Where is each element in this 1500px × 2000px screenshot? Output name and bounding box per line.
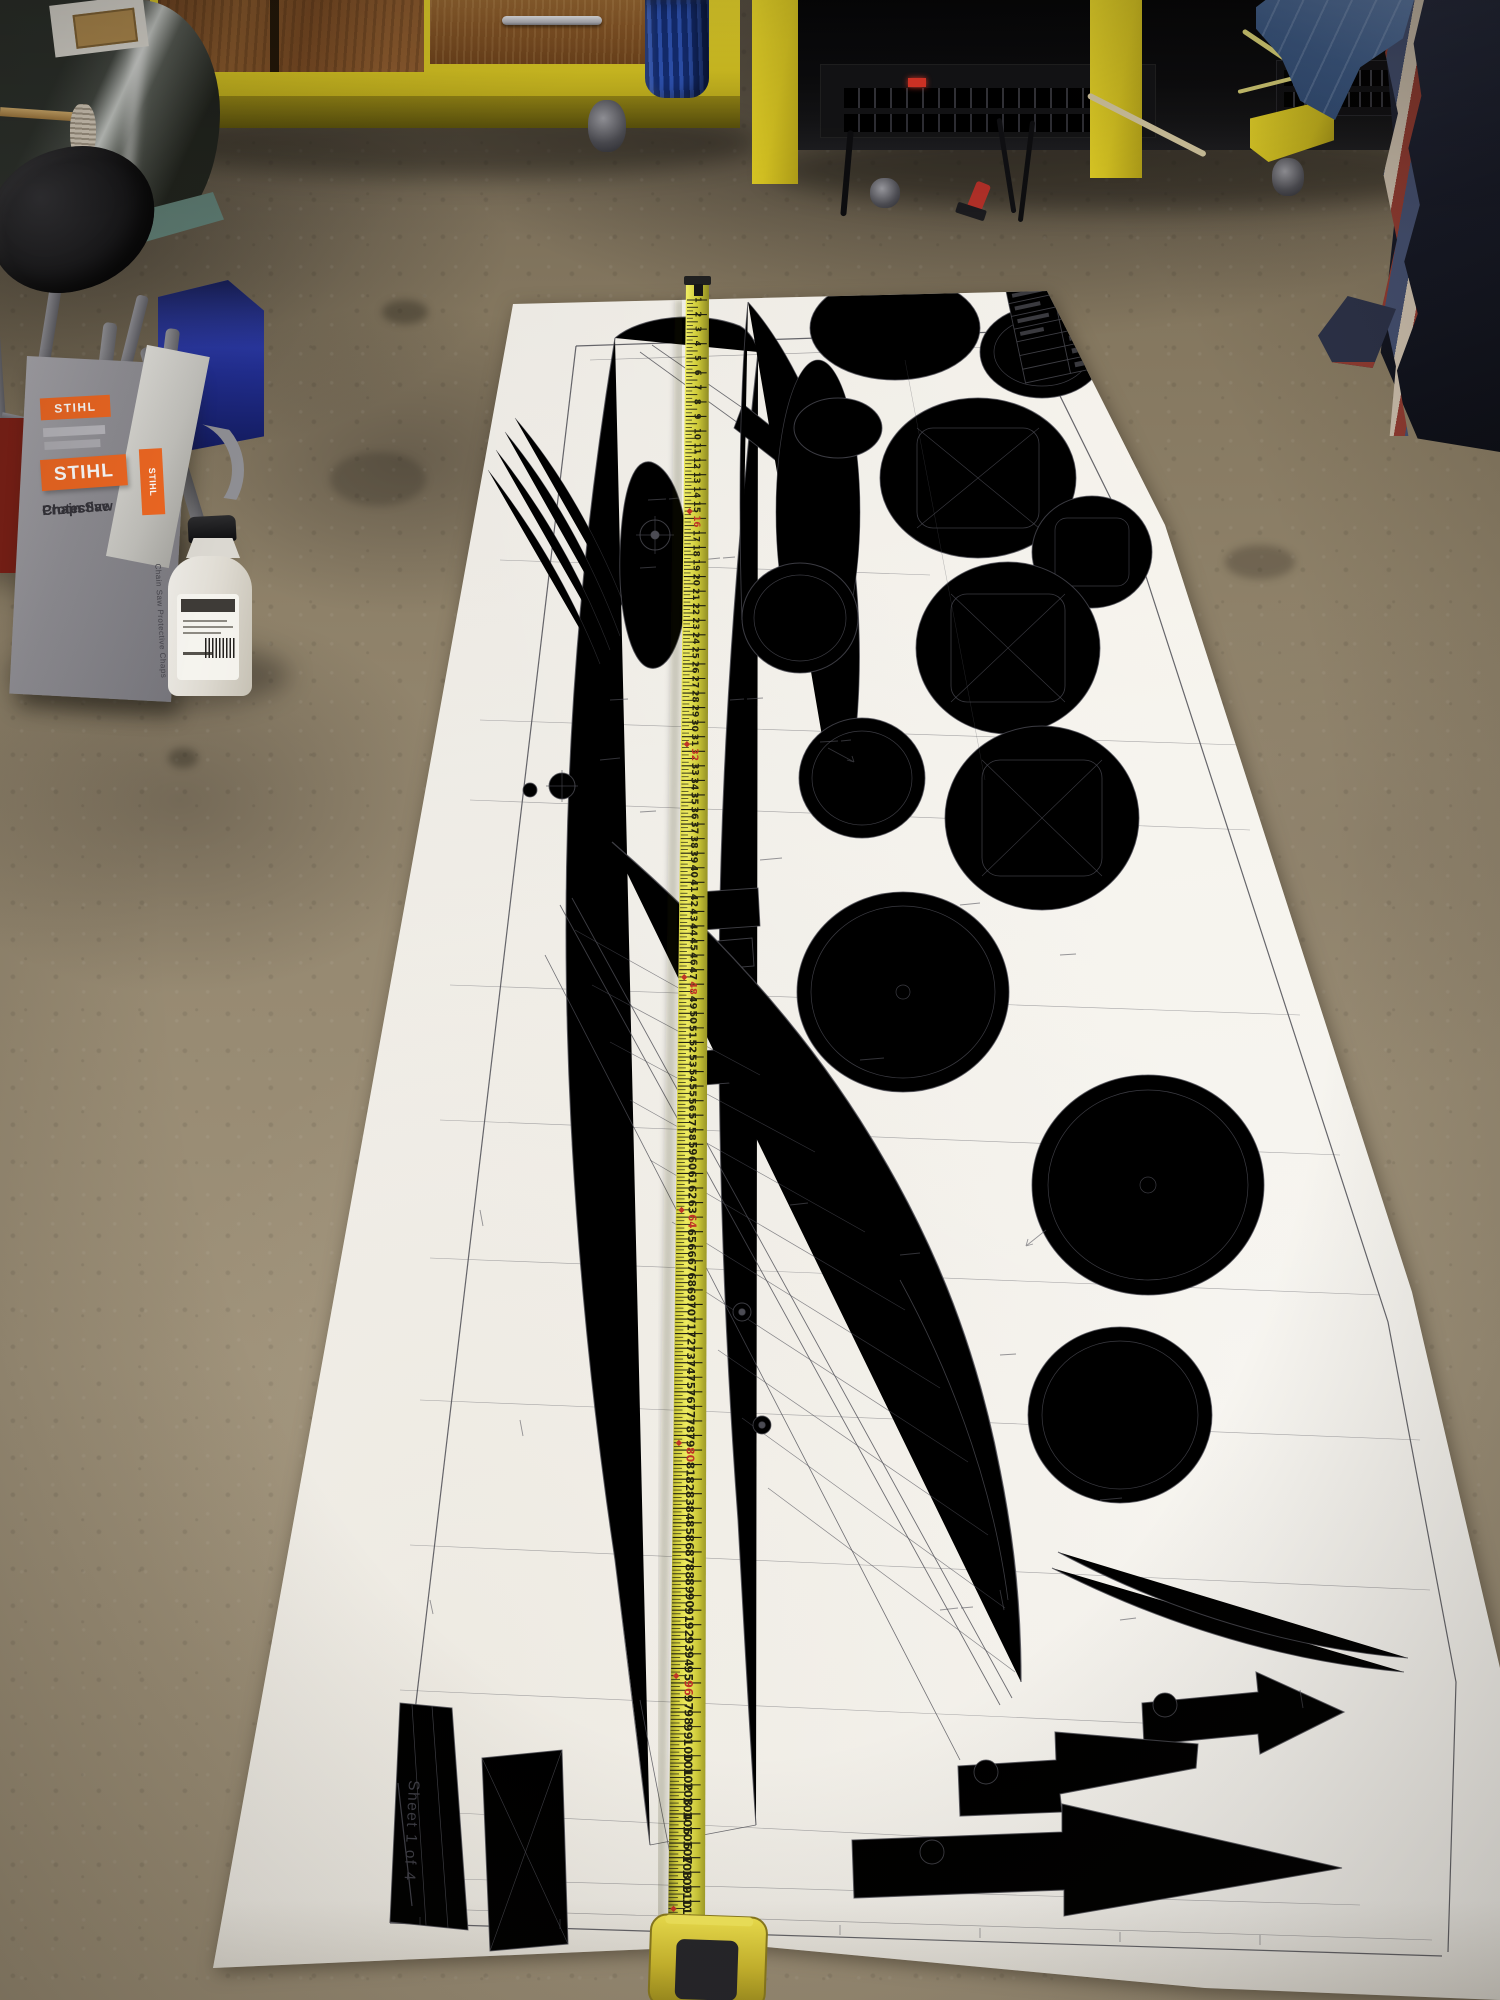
svg-text:20: 20 bbox=[690, 574, 700, 586]
svg-text:74: 74 bbox=[684, 1360, 697, 1375]
svg-text:48: 48 bbox=[687, 981, 698, 995]
svg-text:28: 28 bbox=[689, 690, 699, 703]
svg-text:7: 7 bbox=[693, 384, 703, 390]
svg-text:66: 66 bbox=[685, 1243, 697, 1257]
svg-text:41: 41 bbox=[688, 879, 699, 892]
svg-text:92: 92 bbox=[682, 1622, 695, 1638]
svg-text:39: 39 bbox=[688, 850, 699, 863]
svg-text:14: 14 bbox=[691, 486, 701, 498]
svg-text:50: 50 bbox=[687, 1010, 698, 1024]
svg-text:6: 6 bbox=[693, 370, 703, 376]
svg-text:71: 71 bbox=[684, 1316, 696, 1331]
svg-text:83: 83 bbox=[683, 1491, 696, 1506]
svg-text:57: 57 bbox=[686, 1112, 697, 1126]
svg-text:65: 65 bbox=[685, 1229, 697, 1243]
svg-text:89: 89 bbox=[682, 1578, 695, 1594]
svg-text:73: 73 bbox=[684, 1345, 696, 1360]
svg-text:3: 3 bbox=[693, 326, 703, 332]
svg-text:18: 18 bbox=[691, 544, 701, 556]
svg-text:95: 95 bbox=[682, 1665, 696, 1681]
svg-text:35: 35 bbox=[689, 792, 700, 805]
svg-text:53: 53 bbox=[687, 1054, 698, 1068]
svg-text:88: 88 bbox=[682, 1564, 695, 1580]
svg-text:2: 2 bbox=[693, 312, 703, 318]
svg-text:32: 32 bbox=[689, 748, 700, 761]
svg-text:75: 75 bbox=[684, 1374, 697, 1389]
svg-text:42: 42 bbox=[688, 894, 699, 907]
svg-text:68: 68 bbox=[685, 1272, 697, 1287]
svg-text:36: 36 bbox=[688, 807, 699, 821]
svg-text:80: 80 bbox=[683, 1447, 696, 1463]
svg-text:62: 62 bbox=[685, 1185, 697, 1199]
svg-text:27: 27 bbox=[690, 675, 700, 688]
svg-text:11: 11 bbox=[691, 443, 701, 455]
tape-case bbox=[648, 1914, 767, 2000]
svg-text:16: 16 bbox=[691, 515, 701, 527]
svg-text:40: 40 bbox=[688, 865, 699, 879]
svg-text:79: 79 bbox=[684, 1432, 697, 1447]
svg-text:49: 49 bbox=[687, 996, 698, 1010]
svg-text:60: 60 bbox=[686, 1156, 697, 1170]
svg-text:64: 64 bbox=[685, 1214, 697, 1228]
svg-text:24: 24 bbox=[690, 632, 700, 645]
svg-text:59: 59 bbox=[686, 1141, 697, 1155]
svg-text:82: 82 bbox=[683, 1476, 696, 1491]
svg-text:4: 4 bbox=[693, 341, 703, 347]
svg-text:93: 93 bbox=[682, 1636, 695, 1652]
tape-measure: 1234567891011121314151617181920212223242… bbox=[0, 0, 1500, 2000]
svg-text:90: 90 bbox=[682, 1593, 695, 1609]
svg-text:17: 17 bbox=[691, 530, 701, 542]
svg-text:21: 21 bbox=[690, 588, 700, 600]
svg-text:30: 30 bbox=[689, 719, 700, 732]
svg-text:47: 47 bbox=[687, 967, 698, 980]
svg-text:43: 43 bbox=[688, 908, 699, 921]
svg-text:61: 61 bbox=[686, 1170, 697, 1184]
svg-text:9: 9 bbox=[692, 413, 702, 419]
svg-text:44: 44 bbox=[688, 923, 699, 937]
svg-text:85: 85 bbox=[683, 1520, 696, 1535]
svg-text:96: 96 bbox=[682, 1680, 696, 1696]
svg-text:29: 29 bbox=[689, 705, 699, 718]
svg-text:1: 1 bbox=[694, 297, 704, 303]
svg-text:51: 51 bbox=[687, 1025, 698, 1039]
svg-text:26: 26 bbox=[690, 661, 700, 674]
tape-end-hook-tab bbox=[694, 284, 703, 296]
svg-text:8: 8 bbox=[693, 399, 703, 405]
svg-text:19: 19 bbox=[690, 559, 700, 571]
svg-text:72: 72 bbox=[684, 1331, 696, 1346]
svg-text:5: 5 bbox=[693, 355, 703, 361]
svg-text:31: 31 bbox=[689, 734, 700, 747]
svg-text:86: 86 bbox=[683, 1534, 696, 1550]
svg-text:69: 69 bbox=[685, 1287, 697, 1302]
svg-text:97: 97 bbox=[681, 1695, 695, 1711]
svg-text:55: 55 bbox=[686, 1083, 697, 1097]
tape-case-window bbox=[675, 1939, 739, 2000]
svg-text:94: 94 bbox=[682, 1651, 695, 1667]
svg-text:67: 67 bbox=[685, 1258, 697, 1272]
workshop-photo: STIHL STIHL Chain Saw Protective Chaps S… bbox=[0, 0, 1500, 2000]
svg-text:78: 78 bbox=[684, 1418, 697, 1433]
svg-text:52: 52 bbox=[687, 1039, 698, 1053]
svg-text:84: 84 bbox=[683, 1505, 696, 1521]
svg-text:56: 56 bbox=[686, 1098, 697, 1112]
svg-text:34: 34 bbox=[689, 777, 700, 790]
svg-text:10: 10 bbox=[691, 428, 701, 440]
svg-text:91: 91 bbox=[682, 1607, 695, 1623]
svg-text:54: 54 bbox=[686, 1069, 697, 1083]
tape-end-hook bbox=[684, 276, 711, 285]
svg-text:58: 58 bbox=[686, 1127, 697, 1141]
svg-text:38: 38 bbox=[688, 836, 699, 849]
svg-text:70: 70 bbox=[685, 1301, 697, 1316]
svg-text:81: 81 bbox=[683, 1462, 696, 1477]
svg-text:25: 25 bbox=[690, 646, 700, 659]
svg-text:12: 12 bbox=[691, 457, 701, 469]
svg-text:13: 13 bbox=[691, 472, 701, 484]
svg-text:63: 63 bbox=[685, 1200, 697, 1214]
svg-text:46: 46 bbox=[687, 952, 698, 966]
svg-text:87: 87 bbox=[683, 1549, 696, 1564]
svg-text:33: 33 bbox=[689, 763, 700, 776]
svg-text:22: 22 bbox=[690, 603, 700, 615]
svg-text:45: 45 bbox=[687, 938, 698, 952]
svg-text:37: 37 bbox=[688, 821, 699, 834]
svg-text:23: 23 bbox=[690, 617, 700, 629]
svg-text:76: 76 bbox=[684, 1389, 697, 1404]
svg-text:77: 77 bbox=[684, 1403, 697, 1418]
